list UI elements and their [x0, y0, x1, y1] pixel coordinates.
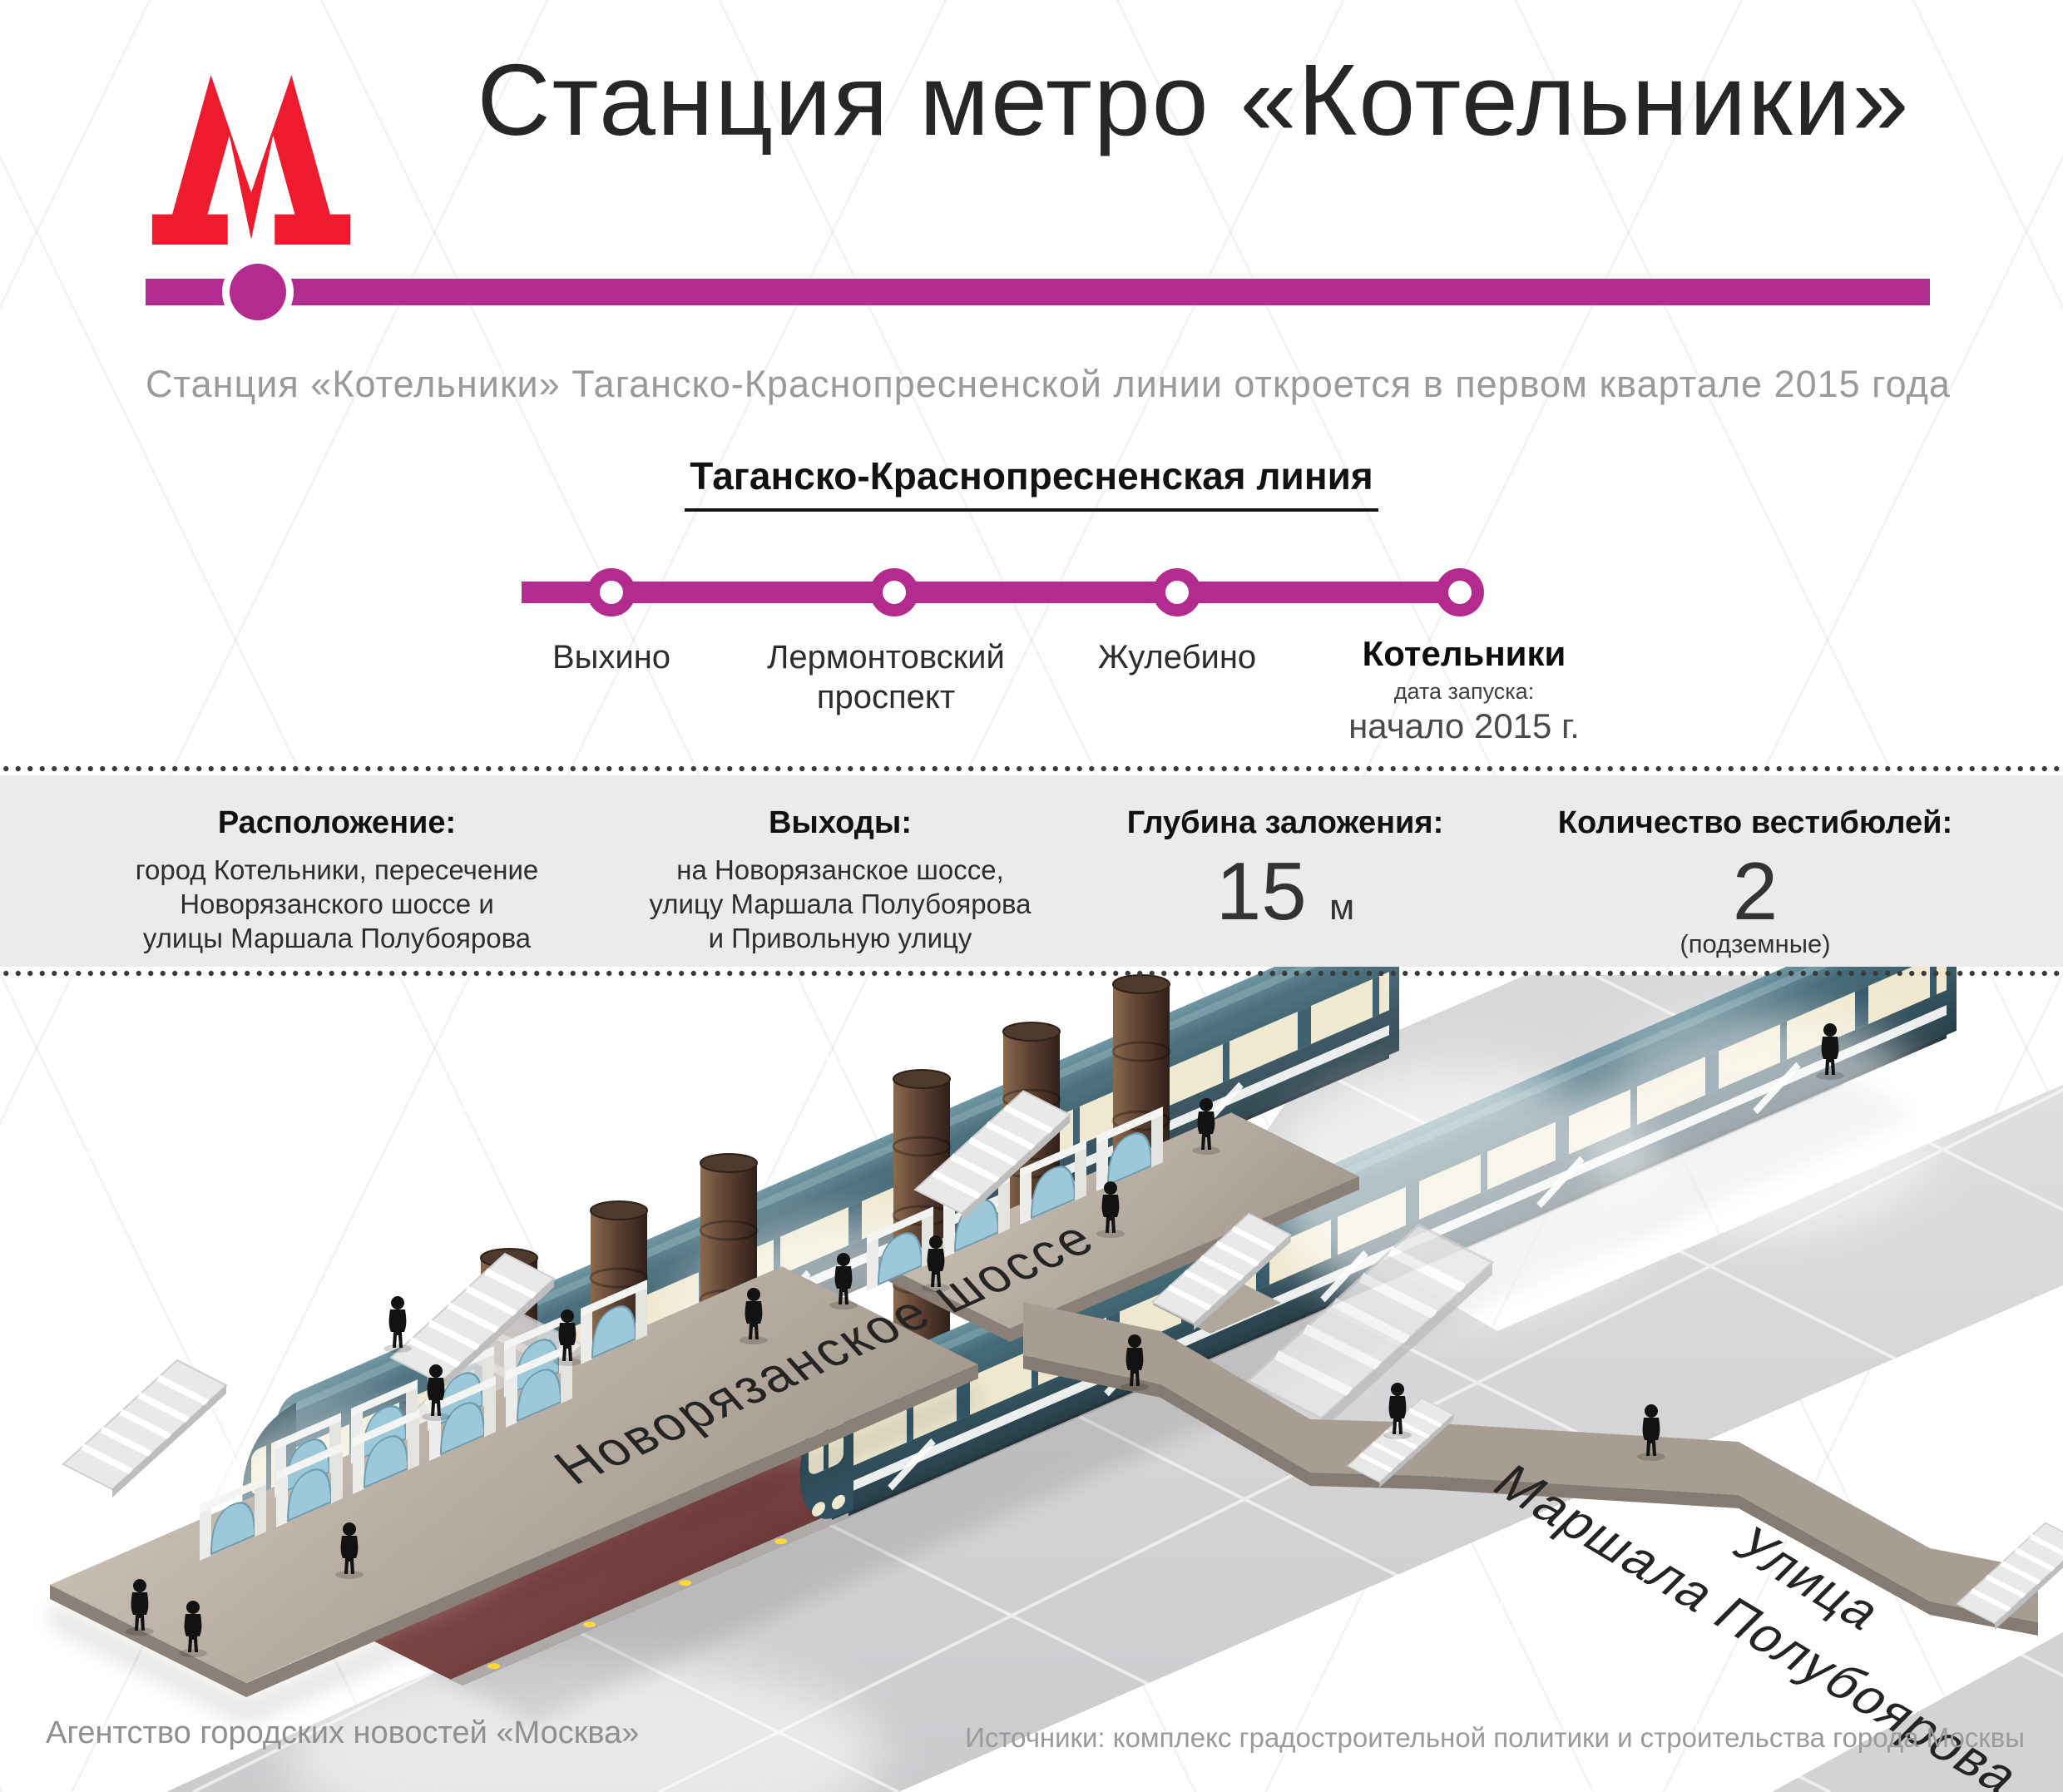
fact-exits-label: Выходы:	[607, 805, 1073, 841]
fact-exits-line: улицу Маршала Полубоярова	[607, 887, 1073, 921]
fact-location-line: улицы Маршала Полубоярова	[71, 921, 603, 955]
fact-location: Расположение: город Котельники, пересече…	[71, 805, 603, 955]
header-line-bar	[146, 279, 1930, 305]
fact-vestibules-value: 2	[1522, 849, 1988, 933]
dotted-rule-bottom	[0, 970, 2063, 977]
stairs-west-2	[63, 1360, 226, 1497]
dotted-rule-top	[0, 765, 2063, 772]
fact-depth-label: Глубина заложения:	[1069, 805, 1501, 841]
station-name: Котельники	[1306, 634, 1622, 674]
fact-vestibules-note: (подземные)	[1522, 929, 1988, 959]
fact-exits-line: на Новорязанское шоссе,	[607, 853, 1073, 887]
line-diagram-bar	[522, 582, 1468, 603]
agency-credit: Агентство городских новостей «Москва»	[46, 1715, 639, 1751]
station-label-zhulebino: Жулебино	[1044, 637, 1310, 677]
fact-exits-line: и Привольную улицу	[607, 921, 1073, 955]
fact-location-label: Расположение:	[71, 805, 603, 841]
station-label-kotelniki: Котельники дата запуска: начало 2015 г.	[1306, 634, 1622, 746]
header-line-dot	[230, 264, 286, 320]
fact-location-line: город Котельники, пересечение	[71, 853, 603, 887]
fact-depth-unit: м	[1329, 887, 1354, 928]
fact-vestibules: Количество вестибюлей: 2 (подземные)	[1522, 805, 1988, 959]
station-marker-zhulebino	[1153, 568, 1201, 616]
sources-note: Источники: комплекс градостроительной по…	[965, 1722, 2025, 1754]
line-title-wrap: Таганско-Краснопресненская линия	[0, 453, 2063, 512]
line-title: Таганско-Краснопресненская линия	[685, 453, 1378, 512]
station-marker-vykhino	[587, 568, 636, 616]
moscow-metro-logo-icon	[140, 68, 368, 246]
fact-depth-value: 15	[1216, 845, 1307, 937]
page-subtitle: Станция «Котельники» Таганско-Краснопрес…	[146, 363, 1951, 406]
station-label-vykhino: Выхино	[478, 637, 745, 677]
fact-exits: Выходы: на Новорязанское шоссе, улицу Ма…	[607, 805, 1073, 955]
fact-vestibules-label: Количество вестибюлей:	[1522, 805, 1988, 841]
infographic-page: Новорязанское шоссе Улица Маршала Полубо…	[0, 0, 2063, 1792]
page-title: Станция метро «Котельники»	[449, 42, 1938, 158]
launch-date-label: дата запуска:	[1306, 679, 1622, 705]
fact-location-line: Новорязанского шоссе и	[71, 887, 603, 921]
fact-depth: Глубина заложения: 15 м	[1069, 805, 1501, 949]
station-label-lermontovsky: Лермонтовский проспект	[761, 637, 1011, 717]
station-marker-kotelniki	[1436, 568, 1484, 616]
station-marker-lermontovsky	[870, 568, 918, 616]
launch-date-value: начало 2015 г.	[1306, 706, 1622, 746]
